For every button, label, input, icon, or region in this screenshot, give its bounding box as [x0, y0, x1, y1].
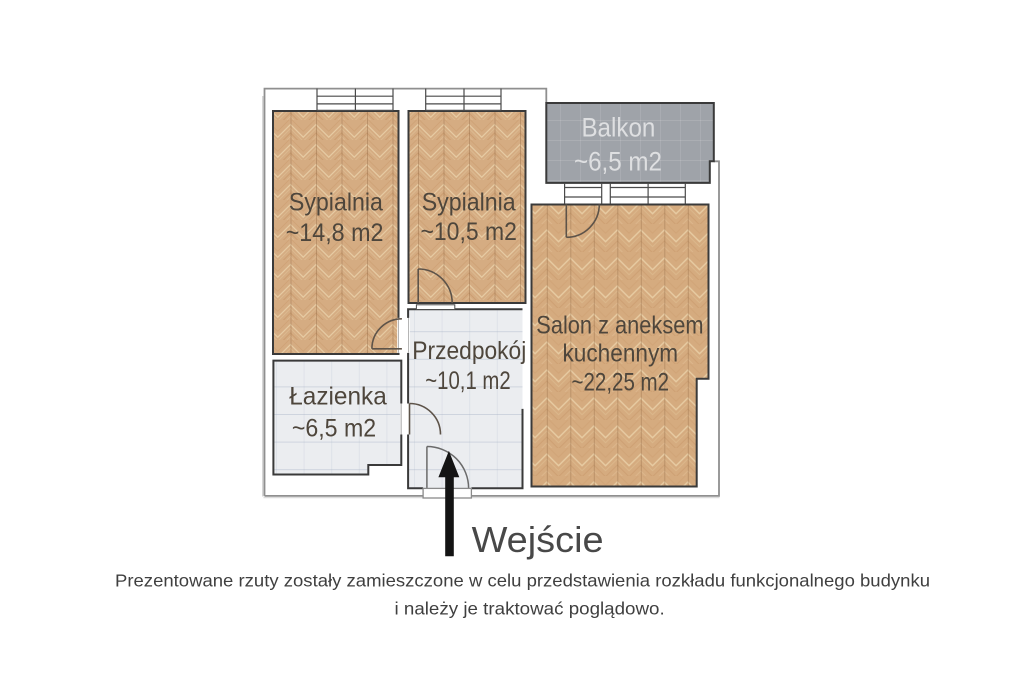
- svg-text:~10,5 m2: ~10,5 m2: [421, 218, 517, 246]
- svg-text:Salon z aneksem: Salon z aneksem: [536, 311, 703, 339]
- svg-text:Sypialnia: Sypialnia: [289, 189, 383, 217]
- svg-text:Prezentowane rzuty zostały zam: Prezentowane rzuty zostały zamieszczone …: [115, 570, 930, 590]
- svg-text:Sypialnia: Sypialnia: [422, 189, 516, 217]
- svg-text:kuchennym: kuchennym: [563, 339, 679, 367]
- svg-text:Łazienka: Łazienka: [289, 383, 387, 411]
- svg-text:~6,5 m2: ~6,5 m2: [574, 147, 662, 177]
- svg-text:~14,8 m2: ~14,8 m2: [286, 219, 384, 247]
- svg-text:Przedpokój: Przedpokój: [412, 337, 526, 365]
- svg-text:Wejście: Wejście: [472, 519, 604, 560]
- svg-text:~22,25 m2: ~22,25 m2: [572, 369, 670, 397]
- svg-text:Balkon: Balkon: [581, 113, 655, 143]
- svg-text:~10,1 m2: ~10,1 m2: [425, 367, 510, 395]
- svg-text:~6,5 m2: ~6,5 m2: [292, 415, 376, 443]
- svg-text:i należy je traktować poglądow: i należy je traktować poglądowo.: [395, 599, 665, 619]
